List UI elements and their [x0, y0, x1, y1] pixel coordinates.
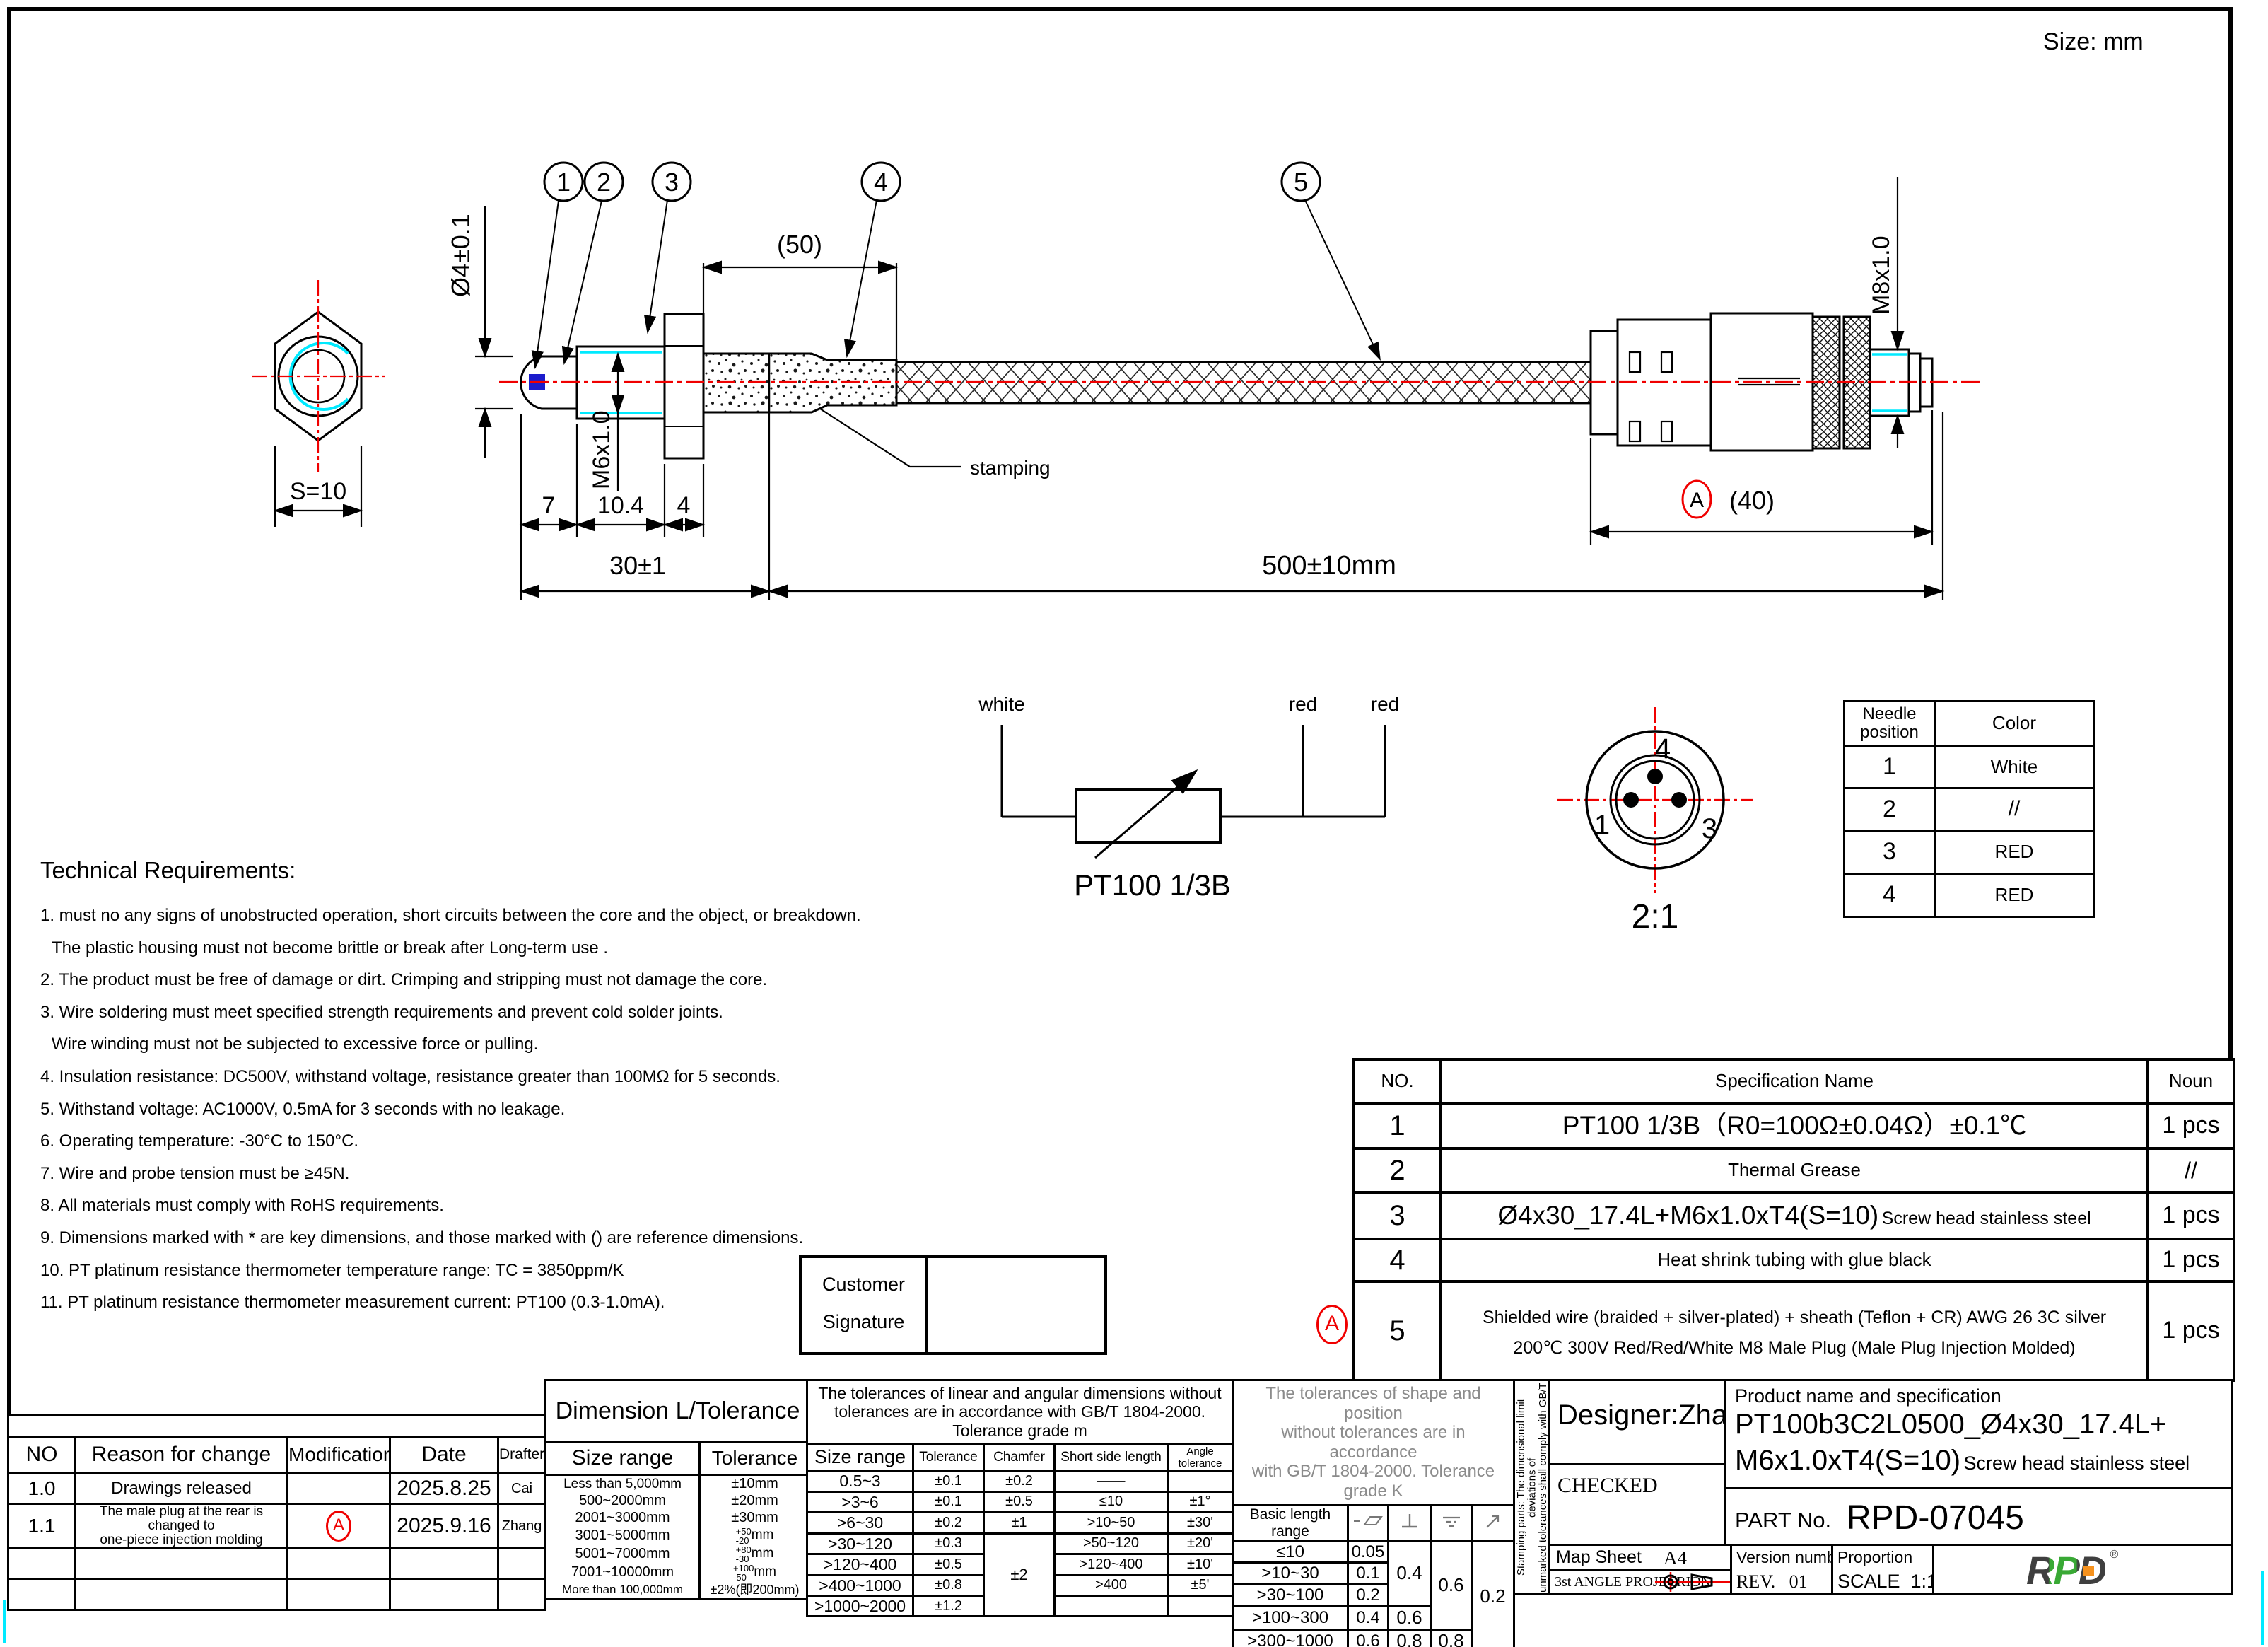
dim-50: (50)	[777, 230, 822, 259]
linear-range: >120~400	[807, 1554, 913, 1575]
pin-1-label: 1	[1594, 810, 1610, 841]
linear-tol: ±0.2	[913, 1513, 984, 1533]
part-no-label: PART No.	[1735, 1508, 1831, 1533]
rev-header-no: NO	[8, 1437, 76, 1474]
shape-tolerance-table: The tolerances of shape and position wit…	[1232, 1379, 1515, 1647]
shape-val: 0.4	[1348, 1606, 1389, 1629]
symmetry-icon	[1431, 1505, 1472, 1541]
product-name-line1: PT100b3C2L0500_Ø4x30_17.4L+	[1735, 1409, 2231, 1441]
tech-line: 7. Wire and probe tension must be ≥45N.	[40, 1158, 861, 1190]
linear-h-short: Short side length	[1055, 1444, 1168, 1471]
needle-color-table: Needle position Color 1White 2// 3RED 4R…	[1843, 700, 2095, 918]
spec-name: Ø4x30_17.4L+M6x1.0xT4(S=10) Screw head s…	[1441, 1192, 2148, 1239]
version-label: Version number	[1736, 1548, 1831, 1567]
linear-angle	[1168, 1471, 1233, 1491]
rev-mod	[288, 1474, 390, 1504]
customer-signature-label-1: Customer	[802, 1274, 925, 1296]
dim-104: 10.4	[597, 492, 644, 519]
dimension-tolerance-table: Dimension L/Tolerance Size range Toleran…	[544, 1379, 811, 1600]
balloon-3: 3	[665, 168, 679, 197]
linear-angle: ±30'	[1168, 1513, 1233, 1533]
customer-signature-field[interactable]	[928, 1258, 1104, 1352]
proportion-value: SCALE 1:1	[1837, 1571, 1932, 1593]
logo-cell: RPD ®	[1932, 1544, 2233, 1595]
linear-h-angle: Angle tolerance	[1168, 1444, 1233, 1471]
runout-icon	[1472, 1505, 1514, 1541]
linear-tol: ±0.3	[913, 1533, 984, 1554]
linear-angle: ±20'	[1168, 1533, 1233, 1554]
linear-range: >1000~2000	[807, 1595, 913, 1616]
linear-angle: ±10'	[1168, 1554, 1233, 1575]
customer-signature-box: Customer Signature	[799, 1255, 1107, 1355]
dim-4: 4	[677, 492, 691, 519]
stamping-note-line: Stamping parts: The dimensional limit de…	[1516, 1383, 1538, 1593]
spec-header-no: NO.	[1354, 1059, 1441, 1103]
balloon-5: 5	[1294, 168, 1308, 197]
version-value: REV. 01	[1736, 1571, 1831, 1593]
stamping-note-line: unmarked tolerances shall comply with GB…	[1538, 1383, 1549, 1593]
stamping-note-strip: Stamping parts: The dimensional limit de…	[1513, 1379, 1550, 1595]
linear-range: >3~6	[807, 1491, 913, 1512]
balloon-1: 1	[556, 168, 571, 197]
logo-orange-square	[2083, 1566, 2094, 1576]
shape-tol-note: The tolerances of shape and position wit…	[1233, 1380, 1514, 1506]
rev-no: 1.1	[8, 1504, 76, 1549]
needle-pos: 3	[1845, 831, 1935, 874]
linear-angle: ±5'	[1168, 1575, 1233, 1595]
designer-cell: Designer:Zhang	[1548, 1379, 1726, 1465]
spec-header-noun: Noun	[2148, 1059, 2234, 1103]
dim-tol-val: ±30mm	[700, 1510, 810, 1527]
spec-name: Shielded wire (braided + silver-plated) …	[1441, 1281, 2148, 1380]
linear-angle: ±1°	[1168, 1491, 1233, 1512]
tech-line: 4. Insulation resistance: DC500V, withst…	[40, 1061, 861, 1093]
dim-40: (40)	[1729, 486, 1775, 515]
heat-shrink	[703, 354, 896, 412]
map-sheet-value: A4	[1664, 1547, 1687, 1569]
scan-artifact	[2261, 1571, 2264, 1645]
rev-date: 2025.8.25	[390, 1474, 498, 1504]
tech-line: 6. Operating temperature: -30°C to 150°C…	[40, 1125, 861, 1158]
dim-tol-val: +100-50mm	[700, 1564, 810, 1582]
pin-1	[1623, 792, 1639, 808]
linear-tol: ±0.1	[913, 1471, 984, 1491]
dim-30: 30±1	[609, 551, 666, 580]
needle-color: //	[1935, 788, 2094, 831]
dim-tol-val: ±2%(即200mm)	[700, 1582, 810, 1600]
face-scale-label: 2:1	[1632, 898, 1679, 936]
checked-label: CHECKED	[1557, 1474, 1724, 1498]
needle-header: Needle position	[1845, 702, 1935, 746]
shape-range: >100~300	[1233, 1606, 1348, 1629]
dim-500: 500±10mm	[1262, 551, 1396, 581]
scan-artifact	[3, 1600, 6, 1643]
dim-7: 7	[542, 492, 556, 519]
dim-tol-h-range: Size range	[546, 1443, 700, 1475]
linear-tol-note: The tolerances of linear and angular dim…	[807, 1380, 1233, 1444]
linear-h-chamfer: Chamfer	[984, 1444, 1055, 1471]
proportion-cell: Proportion SCALE 1:1	[1831, 1544, 1934, 1595]
balloon-4: 4	[874, 168, 888, 197]
wire-red2-label: red	[1371, 693, 1399, 715]
dim-tol-range: 5001~7000mm	[546, 1545, 700, 1564]
needle-pos: 1	[1845, 746, 1935, 788]
linear-range: >6~30	[807, 1513, 913, 1533]
pt100-schematic	[1002, 725, 1385, 858]
spec-no: 2	[1354, 1148, 1441, 1192]
revision-table: NO Reason for change Modification Date D…	[7, 1414, 546, 1611]
probe-body	[521, 314, 1594, 458]
shape-range: >30~100	[1233, 1585, 1348, 1607]
pin-3	[1671, 792, 1687, 808]
pin-4	[1647, 769, 1663, 784]
shape-val-merged: 0.6	[1431, 1541, 1472, 1629]
engineering-drawing-page: Size: mm	[0, 0, 2268, 1647]
linear-short: >10~50	[1055, 1513, 1168, 1533]
version-cell: Version number REV. 01	[1730, 1544, 1833, 1595]
dim-tol-val: +80-30mm	[700, 1545, 810, 1564]
map-sheet-label: Map Sheet	[1556, 1547, 1642, 1567]
rev-no: 1.0	[8, 1474, 76, 1504]
linear-tol: ±0.5	[913, 1554, 984, 1575]
pin-3-label: 3	[1702, 813, 1717, 844]
tech-line: Wire winding must not be subjected to ex…	[40, 1028, 861, 1061]
rev-drafter: Zhang	[498, 1504, 546, 1549]
rev-reason: Drawings released	[76, 1474, 288, 1504]
shape-val: 0.6	[1389, 1606, 1431, 1629]
registered-mark: ®	[2110, 1549, 2117, 1561]
designer-label: Designer:Zhang	[1557, 1399, 1724, 1431]
rev-drafter: Cai	[498, 1474, 546, 1504]
tech-line: 8. All materials must comply with RoHS r…	[40, 1189, 861, 1222]
shape-val: 0.8	[1431, 1629, 1472, 1647]
flatness-icon	[1348, 1505, 1389, 1541]
pin-4-label: 4	[1655, 733, 1671, 764]
tech-line: 5. Withstand voltage: AC1000V, 0.5mA for…	[40, 1093, 861, 1126]
spec-a-balloon: A	[1316, 1305, 1348, 1344]
shape-val: 0.6	[1348, 1629, 1389, 1647]
dim-tol-range: Less than 5,000mm	[546, 1475, 700, 1493]
dim-tol-range: 3001~5000mm	[546, 1527, 700, 1545]
balloon-2: 2	[597, 168, 611, 197]
linear-short: ——	[1055, 1471, 1168, 1491]
label-stamping: stamping	[970, 457, 1051, 479]
needle-pos: 4	[1845, 874, 1935, 917]
spec-no: 1	[1354, 1103, 1441, 1148]
product-name-line2: M6x1.0xT4(S=10) Screw head stainless ste…	[1735, 1445, 2231, 1477]
linear-short: ≤10	[1055, 1491, 1168, 1512]
tech-line: 2. The product must be free of damage or…	[40, 964, 861, 996]
product-name-cell: Product name and specification PT100b3C2…	[1724, 1379, 2233, 1489]
perpendicularity-icon	[1389, 1505, 1431, 1541]
rev-reason: The male plug at the rear is changed to …	[76, 1504, 288, 1549]
shape-val: 0.8	[1389, 1629, 1431, 1647]
dim-tol-val: +50-20mm	[700, 1527, 810, 1545]
linear-tolerance-table: The tolerances of linear and angular dim…	[806, 1379, 1234, 1617]
shape-val-merged: 0.4	[1389, 1541, 1431, 1606]
needle-color: White	[1935, 746, 2094, 788]
linear-range: >30~120	[807, 1533, 913, 1554]
shape-range: >10~30	[1233, 1563, 1348, 1585]
rev-date: 2025.9.16	[390, 1504, 498, 1549]
rev-header-date: Date	[390, 1437, 498, 1474]
rev-header-mod: Modification	[288, 1437, 390, 1474]
customer-signature-label-2: Signature	[802, 1311, 925, 1333]
spec-noun: 1 pcs	[2148, 1103, 2234, 1148]
spec-noun: 1 pcs	[2148, 1192, 2234, 1239]
color-header: Color	[1935, 702, 2094, 746]
label-m6: M6x1.0	[588, 411, 615, 490]
linear-tol: ±0.8	[913, 1575, 984, 1595]
linear-chamfer: ±1	[984, 1513, 1055, 1533]
shape-val-merged: 0.2	[1472, 1541, 1514, 1647]
linear-chamfer: ±0.5	[984, 1491, 1055, 1512]
wire-white-label: white	[978, 693, 1024, 715]
spec-no: 4	[1354, 1239, 1441, 1281]
third-angle-projection-icon	[1655, 1571, 1733, 1593]
schematic-label: PT100 1/3B	[1074, 868, 1231, 902]
spec-name: PT100 1/3B（R0=100Ω±0.04Ω）±0.1℃	[1441, 1103, 2148, 1148]
balloon-leaders	[535, 200, 1380, 368]
rev-mod: A	[288, 1504, 390, 1549]
linear-chamfer-merged: ±2	[984, 1533, 1055, 1617]
tech-requirements-list: 1. must no any signs of unobstructed ope…	[40, 900, 861, 1319]
needle-color: RED	[1935, 874, 2094, 917]
tech-line: The plastic housing must not become brit…	[40, 932, 861, 965]
shape-h-range: Basic length range	[1233, 1505, 1348, 1541]
spec-no: 3	[1354, 1192, 1441, 1239]
tech-line: 11. PT platinum resistance thermometer m…	[40, 1286, 861, 1319]
linear-short: >120~400	[1055, 1554, 1168, 1575]
m6-thread	[577, 347, 665, 419]
shape-val: 0.05	[1348, 1541, 1389, 1563]
spec-noun: 1 pcs	[2148, 1281, 2234, 1380]
dim-tol-val: ±10mm	[700, 1475, 810, 1493]
tech-line: 9. Dimensions marked with * are key dime…	[40, 1222, 861, 1255]
linear-short	[1055, 1595, 1168, 1616]
rev-header-reason: Reason for change	[76, 1437, 288, 1474]
label-m8: M8x1.0	[1868, 236, 1895, 315]
shape-range: ≤10	[1233, 1541, 1348, 1563]
dim-tol-range: 2001~3000mm	[546, 1510, 700, 1527]
spec-noun: //	[2148, 1148, 2234, 1192]
spec-name: Heat shrink tubing with glue black	[1441, 1239, 2148, 1281]
shape-range: >300~1000	[1233, 1629, 1348, 1647]
projection-cell: 3st ANGLE PROJECRION	[1548, 1569, 1732, 1595]
linear-range: 0.5~3	[807, 1471, 913, 1491]
spec-noun: 1 pcs	[2148, 1239, 2234, 1281]
map-sheet-cell: Map Sheet A4	[1548, 1544, 1732, 1571]
needle-pos: 2	[1845, 788, 1935, 831]
linear-short: >400	[1055, 1575, 1168, 1595]
spec-header-name: Specification Name	[1441, 1059, 2148, 1103]
checked-cell: CHECKED	[1548, 1463, 1726, 1546]
rev-header-drafter: Drafter	[498, 1437, 546, 1474]
linear-h-tol: Tolerance	[913, 1444, 984, 1471]
part-no-cell: PART No. RPD-07045	[1724, 1487, 2233, 1546]
company-logo: RPD ®	[2026, 1547, 2105, 1593]
tech-line: 10. PT platinum resistance thermometer t…	[40, 1255, 861, 1287]
shape-val: 0.2	[1348, 1585, 1389, 1607]
hex-centerlines	[252, 280, 385, 472]
wire-red1-label: red	[1289, 693, 1317, 715]
tech-line: 1. must no any signs of unobstructed ope…	[40, 900, 861, 932]
dim-tol-val: ±20mm	[700, 1493, 810, 1510]
shape-val: 0.1	[1348, 1563, 1389, 1585]
spec-no: 5	[1354, 1281, 1441, 1380]
dim-s10: S=10	[290, 478, 346, 505]
specification-table: NO. Specification Name Noun 1 PT100 1/3B…	[1352, 1058, 2235, 1382]
linear-short: >50~120	[1055, 1533, 1168, 1554]
dim-dia4: Ø4±0.1	[446, 214, 475, 297]
linear-angle	[1168, 1595, 1233, 1616]
spec-name: Thermal Grease	[1441, 1148, 2148, 1192]
dim-tol-h-tol: Tolerance	[700, 1443, 810, 1475]
dim-tol-range: 7001~10000mm	[546, 1564, 700, 1582]
linear-range: >400~1000	[807, 1575, 913, 1595]
needle-color: RED	[1935, 831, 2094, 874]
dim-tol-range: 500~2000mm	[546, 1493, 700, 1510]
linear-tol: ±1.2	[913, 1595, 984, 1616]
part-no-value: RPD-07045	[1847, 1498, 2024, 1537]
linear-tol: ±0.1	[913, 1491, 984, 1512]
revision-a-label: A	[1690, 489, 1704, 512]
tech-requirements-title: Technical Requirements:	[40, 857, 296, 884]
dim-tol-range: More than 100,000mm	[546, 1582, 700, 1600]
hex-flange	[665, 314, 703, 458]
dim-tol-title: Dimension L/Tolerance	[546, 1380, 810, 1443]
callout-balloons	[544, 163, 1320, 201]
tech-line: 3. Wire soldering must meet specified st…	[40, 996, 861, 1029]
linear-chamfer: ±0.2	[984, 1471, 1055, 1491]
proportion-label: Proportion	[1837, 1548, 1932, 1567]
linear-h-range: Size range	[807, 1444, 913, 1471]
product-name-label: Product name and specification	[1735, 1385, 2231, 1407]
